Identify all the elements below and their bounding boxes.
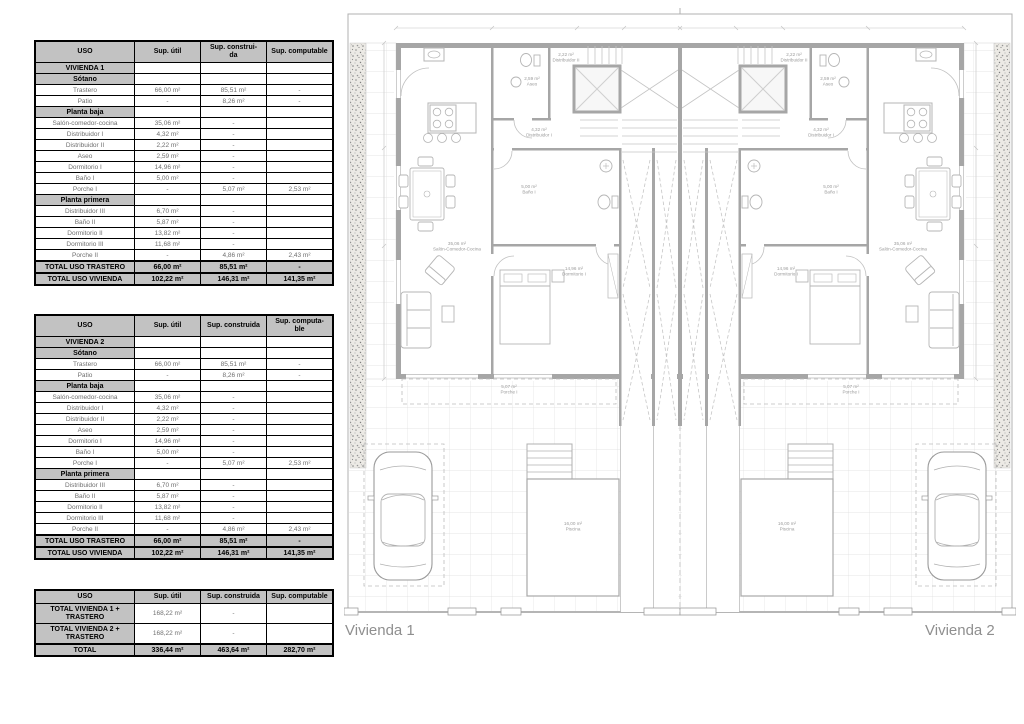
value-cell: 14,96 m²	[135, 162, 201, 173]
column-header: Sup. computable	[267, 590, 334, 604]
row-label: Planta baja	[35, 381, 135, 392]
bano1-label: Baño I	[522, 190, 535, 195]
table-row: TOTAL USO VIVIENDA102,22 m²146,31 m²141,…	[35, 547, 333, 559]
value-cell: 66,00 m²	[135, 535, 201, 547]
value-cell: 11,68 m²	[135, 239, 201, 250]
vivienda-1-label: Vivienda 1	[345, 622, 415, 639]
value-cell: -	[201, 151, 267, 162]
row-label: Dormitorio I	[35, 436, 135, 447]
value-cell	[267, 425, 334, 436]
table-vivienda-2: USOSup. útilSup. construidaSup. computa-…	[34, 314, 334, 560]
row-label: Dormitorio III	[35, 513, 135, 524]
value-cell: 5,87 m²	[135, 217, 201, 228]
value-cell: -	[201, 447, 267, 458]
value-cell	[201, 63, 267, 74]
value-cell	[267, 228, 334, 239]
row-label: Aseo	[35, 151, 135, 162]
row-label: TOTAL VIVIENDA 1 + TRASTERO	[35, 604, 135, 624]
value-cell: 146,31 m²	[201, 547, 267, 559]
value-cell	[267, 151, 334, 162]
value-cell	[201, 337, 267, 348]
table-vivienda-1: USOSup. útilSup. construi- daSup. comput…	[34, 40, 334, 286]
row-label: Salón-comedor-cocina	[35, 392, 135, 403]
value-cell: 4,32 m²	[135, 129, 201, 140]
table-row: Patio-8,26 m²-	[35, 370, 333, 381]
table-row: Sótano	[35, 348, 333, 359]
value-cell	[135, 337, 201, 348]
table-row: Distribuidor III6,70 m²-	[35, 480, 333, 491]
salon-label: 35,06 m²	[448, 241, 467, 246]
value-cell: 146,31 m²	[201, 273, 267, 285]
value-cell: 336,44 m²	[135, 644, 201, 656]
value-cell: 13,82 m²	[135, 502, 201, 513]
value-cell	[267, 173, 334, 184]
piscina-label: 16,00 m²	[564, 521, 583, 526]
value-cell: -	[201, 480, 267, 491]
row-label: Patio	[35, 96, 135, 107]
value-cell: -	[267, 85, 334, 96]
table-totals: USOSup. útilSup. construidaSup. computab…	[34, 589, 334, 657]
distribuidor1-label: 4,32 m²	[531, 127, 547, 132]
porche1-label: Porche I	[500, 390, 517, 395]
value-cell	[267, 107, 334, 118]
value-cell: 102,22 m²	[135, 273, 201, 285]
value-cell: 66,00 m²	[135, 261, 201, 273]
value-cell: -	[201, 502, 267, 513]
value-cell: 85,51 m²	[201, 359, 267, 370]
table-row: Dormitorio I14,96 m²-	[35, 162, 333, 173]
value-cell: -	[201, 414, 267, 425]
column-header: Sup. útil	[135, 590, 201, 604]
row-label: Distribuidor I	[35, 403, 135, 414]
value-cell	[135, 381, 201, 392]
value-cell	[201, 381, 267, 392]
value-cell: -	[267, 370, 334, 381]
table-row: Salón-comedor-cocina35,06 m²-	[35, 118, 333, 129]
value-cell: -	[201, 239, 267, 250]
row-label: VIVIENDA 1	[35, 63, 135, 74]
porche1-label: 5,07 m²	[501, 384, 517, 389]
value-cell: 5,07 m²	[201, 458, 267, 469]
value-cell: 8,26 m²	[201, 370, 267, 381]
value-cell: -	[201, 425, 267, 436]
value-cell: -	[201, 604, 267, 624]
value-cell: -	[201, 436, 267, 447]
row-label: Planta baja	[35, 107, 135, 118]
salon-label: Salón-Comedor-Cocina	[879, 247, 927, 252]
value-cell	[267, 140, 334, 151]
value-cell: 13,82 m²	[135, 228, 201, 239]
distribuidor2-label: Distribuidor II	[552, 58, 579, 63]
value-cell: -	[201, 513, 267, 524]
table-row: Baño I5,00 m²-	[35, 447, 333, 458]
row-label: Dormitorio II	[35, 502, 135, 513]
row-label: Distribuidor III	[35, 480, 135, 491]
value-cell	[201, 348, 267, 359]
value-cell: 2,53 m²	[267, 458, 334, 469]
value-cell	[135, 348, 201, 359]
piscina-label: Piscina	[780, 527, 795, 532]
row-label: TOTAL USO VIVIENDA	[35, 547, 135, 559]
row-label: Baño II	[35, 491, 135, 502]
value-cell: -	[267, 535, 334, 547]
row-label: Porche II	[35, 524, 135, 536]
value-cell: 168,22 m²	[135, 624, 201, 645]
value-cell: 2,59 m²	[135, 151, 201, 162]
value-cell	[267, 436, 334, 447]
value-cell: 5,87 m²	[135, 491, 201, 502]
table-row: Trastero66,00 m²85,51 m²-	[35, 359, 333, 370]
value-cell	[267, 206, 334, 217]
value-cell: 2,22 m²	[135, 140, 201, 151]
plan-sheet: USOSup. útilSup. construi- daSup. comput…	[0, 0, 1024, 724]
row-label: Porche I	[35, 458, 135, 469]
table-row: Porche II-4,86 m²2,43 m²	[35, 250, 333, 262]
table-row: VIVIENDA 1	[35, 63, 333, 74]
value-cell: 4,86 m²	[201, 524, 267, 536]
row-label: Aseo	[35, 425, 135, 436]
value-cell: 2,53 m²	[267, 184, 334, 195]
value-cell: 141,35 m²	[267, 547, 334, 559]
row-label: Patio	[35, 370, 135, 381]
table-row: Porche II-4,86 m²2,43 m²	[35, 524, 333, 536]
row-label: Salón-comedor-cocina	[35, 118, 135, 129]
table-row: Porche I-5,07 m²2,53 m²	[35, 458, 333, 469]
value-cell: 66,00 m²	[135, 85, 201, 96]
row-label: Trastero	[35, 85, 135, 96]
aseo-label: Aseo	[527, 82, 538, 87]
value-cell: 5,00 m²	[135, 173, 201, 184]
column-header: USO	[35, 41, 135, 63]
value-cell	[267, 162, 334, 173]
row-label: TOTAL VIVIENDA 2 + TRASTERO	[35, 624, 135, 645]
distribuidor2-label: 2,22 m²	[786, 52, 802, 57]
value-cell: 35,06 m²	[135, 118, 201, 129]
bano1-label: 5,00 m²	[521, 184, 537, 189]
value-cell: -	[201, 206, 267, 217]
table-row: Sótano	[35, 74, 333, 85]
value-cell	[267, 217, 334, 228]
value-cell: -	[267, 359, 334, 370]
aseo-label: 2,59 m²	[524, 76, 540, 81]
table-row: Aseo2,59 m²-	[35, 425, 333, 436]
row-label: TOTAL USO VIVIENDA	[35, 273, 135, 285]
row-label: VIVIENDA 2	[35, 337, 135, 348]
value-cell: -	[201, 217, 267, 228]
floor-plan: 2,59 m²Aseo2,59 m²Aseo2,22 m²Distribuido…	[344, 8, 1016, 626]
dormitorio1-label: Dormitorio I	[774, 272, 798, 277]
value-cell	[135, 469, 201, 480]
value-cell	[267, 63, 334, 74]
value-cell	[201, 74, 267, 85]
value-cell	[267, 414, 334, 425]
value-cell: 141,35 m²	[267, 273, 334, 285]
value-cell: 5,07 m²	[201, 184, 267, 195]
value-cell	[267, 403, 334, 414]
value-cell: -	[135, 96, 201, 107]
value-cell: -	[135, 524, 201, 536]
value-cell	[267, 239, 334, 250]
value-cell: -	[201, 491, 267, 502]
value-cell: -	[135, 250, 201, 262]
value-cell	[267, 74, 334, 85]
value-cell: 102,22 m²	[135, 547, 201, 559]
value-cell	[201, 195, 267, 206]
column-header: Sup. computa- ble	[267, 315, 334, 337]
column-header: Sup. construida	[201, 590, 267, 604]
row-label: Planta primera	[35, 195, 135, 206]
row-label: TOTAL	[35, 644, 135, 656]
column-header: USO	[35, 315, 135, 337]
value-cell: -	[267, 96, 334, 107]
value-cell: -	[201, 129, 267, 140]
value-cell	[267, 392, 334, 403]
row-label: Distribuidor II	[35, 140, 135, 151]
table-row: Planta baja	[35, 381, 333, 392]
row-label: Dormitorio III	[35, 239, 135, 250]
distribuidor2-label: Distribuidor II	[780, 58, 807, 63]
distribuidor2-label: 2,22 m²	[558, 52, 574, 57]
value-cell	[135, 195, 201, 206]
header-row: USOSup. útilSup. construi- daSup. comput…	[35, 41, 333, 63]
table-row: TOTAL VIVIENDA 1 + TRASTERO168,22 m²-	[35, 604, 333, 624]
aseo-label: 2,59 m²	[820, 76, 836, 81]
value-cell: -	[201, 624, 267, 645]
value-cell: -	[201, 173, 267, 184]
value-cell: 11,68 m²	[135, 513, 201, 524]
table-row: Dormitorio I14,96 m²-	[35, 436, 333, 447]
value-cell: 2,43 m²	[267, 524, 334, 536]
table-row: Distribuidor II2,22 m²-	[35, 414, 333, 425]
value-cell	[267, 337, 334, 348]
row-label: TOTAL USO TRASTERO	[35, 261, 135, 273]
value-cell: 4,32 m²	[135, 403, 201, 414]
row-label: Porche I	[35, 184, 135, 195]
value-cell	[201, 469, 267, 480]
row-label: Trastero	[35, 359, 135, 370]
vivienda-2-label: Vivienda 2	[925, 622, 995, 639]
row-label: Distribuidor I	[35, 129, 135, 140]
table-row: Porche I-5,07 m²2,53 m²	[35, 184, 333, 195]
table-row: TOTAL336,44 m²463,64 m²282,70 m²	[35, 644, 333, 656]
value-cell: 85,51 m²	[201, 261, 267, 273]
row-label: Sótano	[35, 74, 135, 85]
table-row: Aseo2,59 m²-	[35, 151, 333, 162]
piscina-label: 16,00 m²	[778, 521, 797, 526]
salon-label: Salón-Comedor-Cocina	[433, 247, 481, 252]
table-row: Distribuidor I4,32 m²-	[35, 403, 333, 414]
table-row: VIVIENDA 2	[35, 337, 333, 348]
table-row: Distribuidor III6,70 m²-	[35, 206, 333, 217]
value-cell: 6,70 m²	[135, 206, 201, 217]
value-cell: -	[201, 403, 267, 414]
value-cell: 6,70 m²	[135, 480, 201, 491]
distribuidor1-label: Distribuidor I	[526, 133, 552, 138]
value-cell	[135, 74, 201, 85]
porche1-label: 5,07 m²	[843, 384, 859, 389]
column-header: Sup. útil	[135, 41, 201, 63]
value-cell	[267, 129, 334, 140]
value-cell	[267, 447, 334, 458]
row-label: Baño I	[35, 173, 135, 184]
table-row: Baño II5,87 m²-	[35, 491, 333, 502]
porche1-label: Porche I	[842, 390, 859, 395]
value-cell	[267, 502, 334, 513]
row-label: Distribuidor III	[35, 206, 135, 217]
dormitorio1-label: Dormitorio I	[562, 272, 586, 277]
bano1-label: Baño I	[824, 190, 837, 195]
piscina-label: Piscina	[566, 527, 581, 532]
value-cell	[201, 107, 267, 118]
table-row: Planta baja	[35, 107, 333, 118]
table-row: TOTAL USO TRASTERO66,00 m²85,51 m²-	[35, 261, 333, 273]
column-header: Sup. útil	[135, 315, 201, 337]
row-label: Porche II	[35, 250, 135, 262]
row-label: Baño II	[35, 217, 135, 228]
salon-label: 35,06 m²	[894, 241, 913, 246]
value-cell: -	[201, 140, 267, 151]
table-row: Patio-8,26 m²-	[35, 96, 333, 107]
value-cell	[267, 604, 334, 624]
value-cell: -	[201, 162, 267, 173]
row-label: Distribuidor II	[35, 414, 135, 425]
value-cell: 5,00 m²	[135, 447, 201, 458]
value-cell: -	[135, 458, 201, 469]
value-cell: -	[201, 118, 267, 129]
table-row: Dormitorio II13,82 m²-	[35, 502, 333, 513]
value-cell: 14,96 m²	[135, 436, 201, 447]
value-cell	[267, 491, 334, 502]
value-cell	[267, 513, 334, 524]
value-cell	[267, 480, 334, 491]
row-label: Dormitorio II	[35, 228, 135, 239]
table-row: Dormitorio II13,82 m²-	[35, 228, 333, 239]
column-header: Sup. construi- da	[201, 41, 267, 63]
column-header: Sup. computable	[267, 41, 334, 63]
value-cell: 66,00 m²	[135, 359, 201, 370]
table-row: Baño II5,87 m²-	[35, 217, 333, 228]
row-label: Sótano	[35, 348, 135, 359]
dormitorio1-label: 14,96 m²	[565, 266, 584, 271]
value-cell: 35,06 m²	[135, 392, 201, 403]
table-row: Planta primera	[35, 195, 333, 206]
header-row: USOSup. útilSup. construidaSup. computab…	[35, 590, 333, 604]
value-cell: 2,59 m²	[135, 425, 201, 436]
value-cell: 282,70 m²	[267, 644, 334, 656]
row-label: Planta primera	[35, 469, 135, 480]
value-cell	[267, 195, 334, 206]
header-row: USOSup. útilSup. construidaSup. computa-…	[35, 315, 333, 337]
table-row: Salón-comedor-cocina35,06 m²-	[35, 392, 333, 403]
row-label: Baño I	[35, 447, 135, 458]
value-cell: -	[201, 228, 267, 239]
value-cell: -	[201, 392, 267, 403]
value-cell: 2,43 m²	[267, 250, 334, 262]
value-cell	[267, 118, 334, 129]
value-cell: 85,51 m²	[201, 85, 267, 96]
value-cell	[135, 63, 201, 74]
column-header: USO	[35, 590, 135, 604]
table-row: Trastero66,00 m²85,51 m²-	[35, 85, 333, 96]
table-row: Dormitorio III11,68 m²-	[35, 513, 333, 524]
table-row: Baño I5,00 m²-	[35, 173, 333, 184]
column-header: Sup. construida	[201, 315, 267, 337]
table-row: Planta primera	[35, 469, 333, 480]
dormitorio1-label: 14,96 m²	[777, 266, 796, 271]
value-cell: 85,51 m²	[201, 535, 267, 547]
value-cell	[135, 107, 201, 118]
value-cell: -	[135, 184, 201, 195]
value-cell: -	[135, 370, 201, 381]
value-cell	[267, 381, 334, 392]
row-label: TOTAL USO TRASTERO	[35, 535, 135, 547]
bano1-label: 5,00 m²	[823, 184, 839, 189]
table-row: Distribuidor I4,32 m²-	[35, 129, 333, 140]
table-row: TOTAL USO VIVIENDA102,22 m²146,31 m²141,…	[35, 273, 333, 285]
value-cell: -	[267, 261, 334, 273]
value-cell: 463,64 m²	[201, 644, 267, 656]
value-cell: 168,22 m²	[135, 604, 201, 624]
aseo-label: Aseo	[823, 82, 834, 87]
distribuidor1-label: Distribuidor I	[808, 133, 834, 138]
value-cell: 8,26 m²	[201, 96, 267, 107]
value-cell: 4,86 m²	[201, 250, 267, 262]
table-row: Dormitorio III11,68 m²-	[35, 239, 333, 250]
value-cell	[267, 348, 334, 359]
value-cell	[267, 469, 334, 480]
value-cell	[267, 624, 334, 645]
table-row: TOTAL VIVIENDA 2 + TRASTERO168,22 m²-	[35, 624, 333, 645]
row-label: Dormitorio I	[35, 162, 135, 173]
value-cell: 2,22 m²	[135, 414, 201, 425]
table-row: Distribuidor II2,22 m²-	[35, 140, 333, 151]
table-row: TOTAL USO TRASTERO66,00 m²85,51 m²-	[35, 535, 333, 547]
distribuidor1-label: 4,32 m²	[813, 127, 829, 132]
party-wall	[678, 43, 682, 426]
